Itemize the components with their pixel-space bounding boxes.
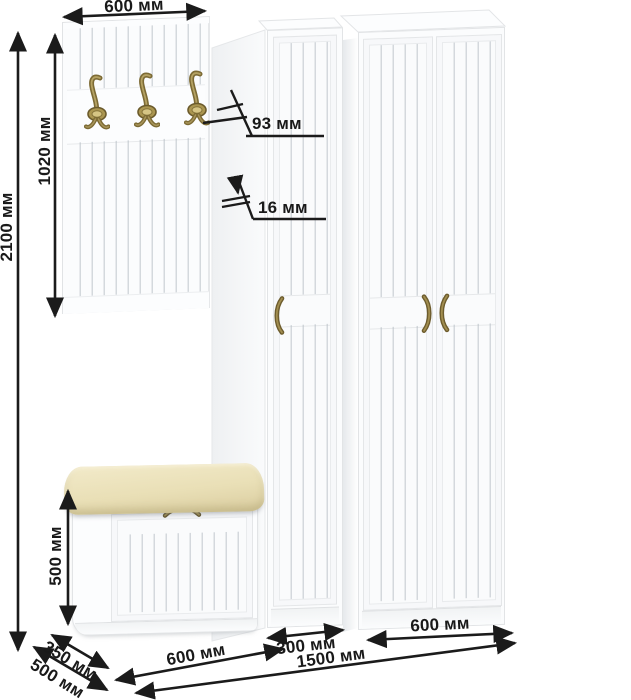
dim-panel-height-label: 1020 мм (35, 109, 55, 193)
dim-hook-height-label: 93 мм (252, 114, 332, 134)
dimension-arrows (0, 0, 631, 700)
thickness-callout-diagonal (239, 182, 253, 219)
thickness-callout-arrow (235, 176, 238, 193)
dim-total-height-label: 2100 мм (0, 185, 17, 269)
hook-callout-diagonal (231, 90, 252, 136)
dim-bench-height-label: 500 мм (46, 514, 66, 598)
furniture-dimension-diagram: 600 мм 2100 мм 1020 мм 500 мм 93 мм 16 м… (0, 0, 631, 700)
dim-panel-thickness-label: 16 мм (258, 198, 338, 218)
hook-callout-leader (203, 117, 247, 123)
